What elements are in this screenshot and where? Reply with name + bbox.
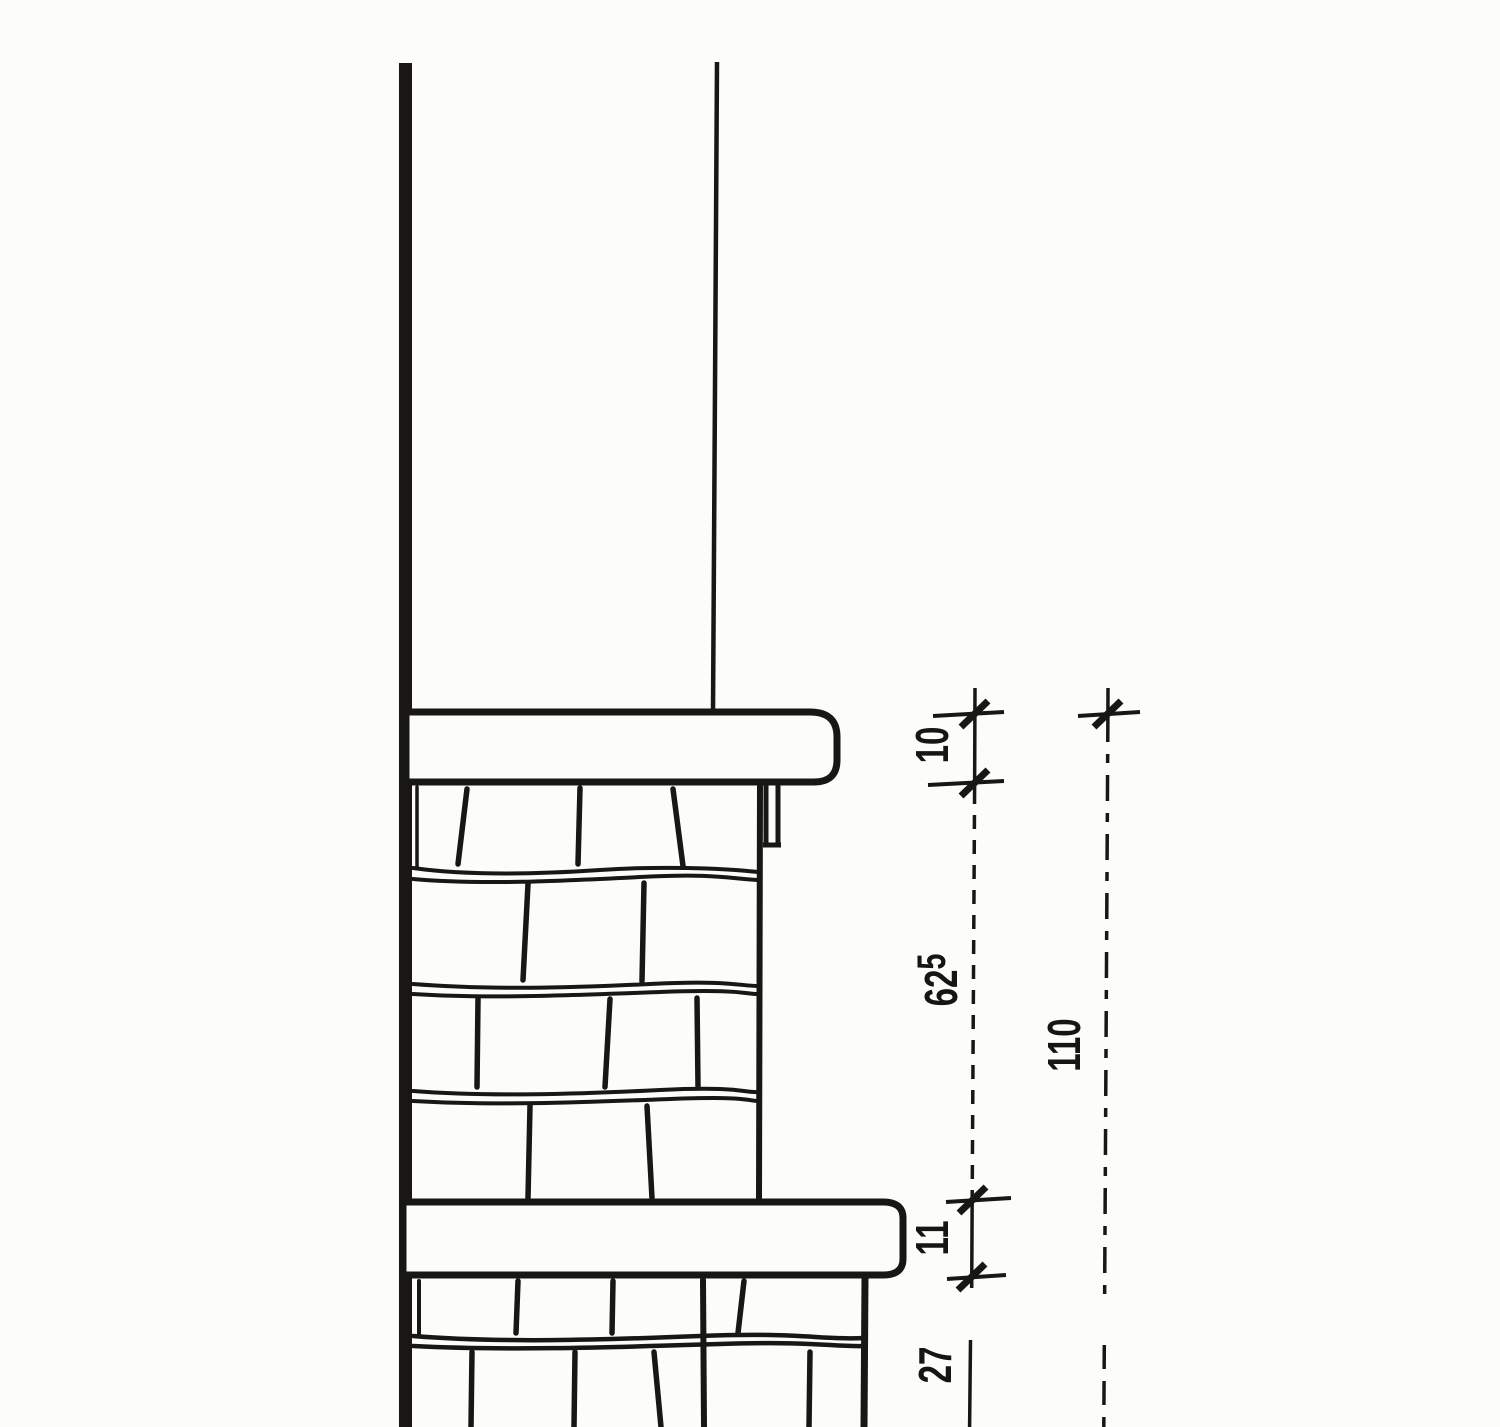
upper-coping-slab	[406, 712, 837, 782]
masonry-bed-joint	[413, 983, 758, 988]
masonry-joint	[477, 999, 478, 1087]
masonry-joint	[516, 1281, 518, 1333]
masonry-bed-joint	[413, 991, 758, 996]
masonry-joint	[738, 1281, 744, 1333]
dimension-label-11: 11	[908, 1220, 958, 1255]
masonry-joint	[471, 1352, 472, 1427]
lower-masonry-face-line	[864, 1278, 865, 1427]
masonry-joint	[578, 788, 580, 864]
dimension-label-10: 10	[908, 727, 958, 764]
drawing-canvas: 10 625 11 27 110	[0, 0, 1500, 1427]
dimension-label-62-main: 62	[917, 970, 967, 1007]
masonry-joint	[458, 789, 467, 864]
masonry-joint	[654, 1352, 661, 1427]
lower-coping-slab	[403, 1202, 903, 1275]
dimension-chain-primary: 10 625 11 27	[908, 688, 1011, 1427]
dimension-chain-overall: 110	[1040, 688, 1140, 1427]
dimension-tick	[946, 1187, 1011, 1213]
dimension-line	[1104, 1345, 1105, 1427]
masonry-joint	[697, 998, 698, 1086]
masonry-bed-joint	[413, 1098, 758, 1103]
masonry-bed-joint	[413, 1343, 865, 1348]
masonry-bed-joint	[413, 868, 758, 874]
dimension-tick	[933, 701, 1004, 727]
wall-section-drawing: 10 625 11 27 110	[0, 0, 1500, 1427]
masonry-joint	[612, 1281, 613, 1333]
dimension-label-62-5: 625	[909, 954, 967, 1007]
lower-masonry	[413, 1278, 865, 1427]
dimension-label-5-superscript: 5	[909, 954, 954, 970]
masonry-joint	[703, 1280, 704, 1427]
dimension-line	[970, 1340, 971, 1427]
masonry-bed-joint	[413, 1335, 865, 1340]
upper-wall-face-line	[713, 62, 717, 712]
masonry-joint	[523, 884, 528, 980]
drip-notch	[763, 785, 781, 845]
masonry-joint	[647, 1106, 652, 1198]
masonry-joint	[605, 999, 610, 1087]
masonry-joint	[673, 789, 683, 866]
dimension-tick	[928, 770, 1004, 796]
dimension-tick	[947, 1264, 1006, 1290]
dimension-label-27: 27	[911, 1347, 961, 1384]
dimension-line	[1105, 716, 1108, 1300]
masonry-joint	[809, 1352, 810, 1427]
masonry-joint	[528, 1106, 530, 1198]
dimension-label-110: 110	[1040, 1018, 1090, 1071]
wall-structure	[399, 62, 903, 1427]
masonry-joint	[642, 883, 644, 981]
masonry-bed-joint	[413, 1089, 758, 1095]
dimension-line	[972, 790, 974, 1195]
upper-masonry	[413, 785, 760, 1200]
masonry-bed-joint	[413, 876, 758, 882]
masonry-joint	[574, 1352, 575, 1427]
